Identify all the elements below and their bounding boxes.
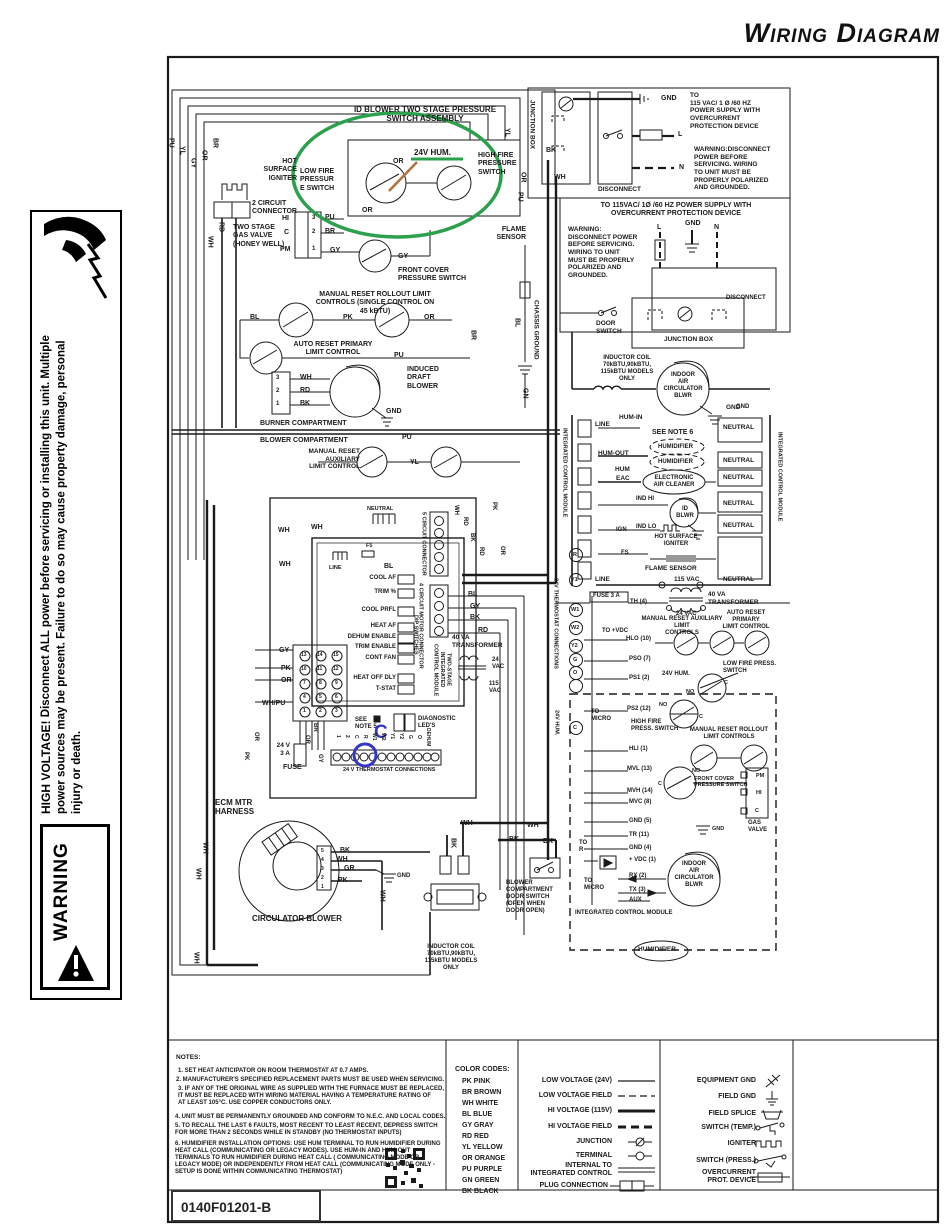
wire-rd-5c: RD [461,517,468,526]
wire-wh-t2: WH [527,822,539,830]
c-lf: C [724,680,728,686]
gv2-c: C [755,808,759,814]
gv-hi: HI [282,215,289,223]
wire-gy-fc2: GY [398,253,408,261]
tstat-conn-v-label: 24V THERMOSTAT CONNECTIONS [552,578,558,669]
idb-pin2: 2 [276,388,279,395]
ll-lvf: LOW VOLTAGE FIELD [500,1092,612,1100]
ind-hi-label: IND HI [636,496,654,503]
wire-wh-l3: WH [191,952,199,964]
hsi-label-2: HOT SURFACE IGNITER [650,534,702,548]
wire-bk-4c: BK [470,614,480,622]
rx-label: RX (2) [629,873,646,880]
cb-p1: 1 [321,885,324,891]
st-6: Y1 [388,733,394,739]
sl-switch-press: SWITCH (PRESS.) [648,1157,756,1165]
note-3: 3. IF ANY OF THE ORIGINAL WIRE AS SUPPLI… [178,1086,444,1107]
bus-br: BR [210,138,218,148]
wire-pk-5c: PK [490,502,497,510]
gv-c: C [284,229,289,237]
p5: 5 [319,695,322,701]
wire-wh-hsi: WH [205,236,213,248]
two-stage-module-label: TWO-STAGE INTEGRATED CONTROL MODULE [432,640,451,700]
p6: 6 [335,695,338,701]
gas-valve-label: TWO STAGE GAS VALVE (HONEY WELL) [233,224,284,249]
cc-rd: RD RED [462,1133,489,1141]
t-y2: Y2 [571,643,578,649]
part-number-box: 0140F01201-B [171,1190,321,1222]
low-fire-label: LOW FIRE PRESSUR E SWITCH [300,168,346,193]
wire-wh-l2: WH [193,868,201,880]
warning-label: WARNING [51,831,73,941]
cb-p5: 5 [321,849,324,855]
mvl-label: MVL (13) [627,766,652,773]
front-cover-label: FRONT COVER PRESSURE SWITCH [398,267,490,284]
vac115-center: 115 VAC [489,681,501,695]
cc-wh: WH WHITE [462,1100,498,1108]
to-r-label: TO R [579,840,587,854]
wire-wh-c2: WH [311,524,323,532]
power2-l: L [657,224,661,232]
wire-bk-t2: BK [543,838,553,846]
st-10: DEHUM [424,728,430,746]
notes-heading: NOTES: [176,1054,201,1062]
inductor-coil-label-1: INDUCTOR COIL 70kBTU,90kBTU, 115kBTU MOD… [598,355,656,383]
wire-or-5c: OR [498,546,505,555]
ll-junction: JUNCTION [500,1138,612,1146]
neutral-1: NEUTRAL [723,424,754,432]
st-9: O [415,735,421,739]
no-hf: NO [659,702,667,708]
gnd5-label: GND (5) [629,818,651,825]
dip-cool-prfl: COOL PRFL [340,607,396,614]
gv-pm: PM [280,246,291,254]
wire-wh-l1: WH [200,842,208,854]
dip-cont-fan: CONT FAN [340,655,396,662]
part-number: 0140F01201-B [181,1200,271,1215]
t-y1: Y1 [571,577,578,583]
humidifier-bottom: HUMIDIFIER [638,946,676,954]
icm-line-bottom: LINE [595,576,610,584]
wiring-diagram-page: Wiring Diagram ID BLOWER TWO STAGE PRESS… [0,0,947,1229]
p8: 8 [319,681,322,687]
id-blwr-label: ID BLWR [676,506,694,520]
t-w2: W2 [571,625,579,631]
flame-sensor-label-2: FLAME SENSOR [645,565,697,573]
p7: 7 [303,681,306,687]
wire-pk-f: PK [242,752,249,760]
neutral-center: NEUTRAL [367,506,393,512]
junction-box-label-1: JUNCTION BOX [528,100,536,149]
p15: 15 [333,653,339,659]
st-5: W2 [379,733,385,741]
humidifier-oval-2: HUMIDIFIER [658,459,693,466]
to-vdc-label: TO +VDC [602,628,628,635]
wire-br-f: BR [311,723,318,732]
cc-br: BR BROWN [462,1089,501,1097]
wire-bl-4c: BL [468,591,477,599]
cb-gnd-label: GND [397,873,410,880]
aux-limit-label: MANUAL RESET AUXILIARY LIMIT CONTROL [296,448,360,471]
tx-label: TX (3) [629,887,646,894]
hum24-v-label: 24V HUM. [553,710,559,735]
indoor-blower-label-1: INDOOR AIR CIRCULATOR BLWR [660,372,706,400]
icm-line-top: LINE [595,421,610,429]
st-3: R [361,735,367,739]
bus-yl: YL [177,146,185,155]
note-5: 5. TO RECALL THE LAST 6 FAULTS, MOST REC… [175,1123,438,1137]
gv-pin1: 1 [312,246,315,253]
high-fire-lv-label: HIGH FIRE PRESS. SWITCH [631,719,678,733]
p14: 14 [317,653,323,659]
cc-gy: GY GRAY [462,1122,494,1130]
color-codes-heading: COLOR CODES: [455,1066,509,1074]
t-c: C [573,725,577,731]
vac24-center: 24 VAC [492,657,504,671]
wire-or-ro: OR [424,314,435,322]
p13: 13 [301,653,307,659]
wire-wh-cb2: WH [377,890,385,902]
rollout-title: MANUAL RESET ROLLOUT LIMIT CONTROLS (SIN… [285,291,465,316]
cc-pk: PK PINK [462,1078,490,1086]
wire-pk-cb: PK [338,877,348,885]
sl-field-gnd: FIELD GND [648,1093,756,1101]
mvc-label: MVC (8) [629,799,651,806]
humidifier-oval-1: HUMIDIFIER [658,444,693,451]
wire-rd-idb: RD [300,387,310,395]
wire-wh-jb: WH [554,174,566,182]
2-circuit-connector-label: 2 CIRCUIT CONNECTOR [252,200,297,217]
wire-wh-c3: WH [279,561,291,569]
c-fc: C [658,781,662,787]
idb-pin1: 1 [276,401,279,408]
idb-pin3: 3 [276,375,279,382]
wire-wh-c1: WH [278,527,290,535]
page-title: Wiring Diagram [700,18,940,49]
p11: 11 [317,667,322,673]
bus-pu: PU [166,138,174,148]
wire-bl-center: BL [384,563,393,571]
mvh-label: MVH (14) [627,788,653,795]
icm-left-label: INTEGRATED CONTROL MODULE [561,428,567,517]
auto-reset-label: AUTO RESET PRIMARY LIMIT CONTROL [278,341,388,358]
burner-compartment-label: BURNER COMPARTMENT [260,420,347,428]
wire-or-15p: OR [281,677,292,685]
vdc1-label: + VDC (1) [629,857,656,864]
hum24-lv-label: 24V HUM. [662,671,690,678]
fs-label: FS [621,550,629,557]
ll-lv24: LOW VOLTAGE (24V) [500,1077,612,1085]
p12: 12 [333,667,339,673]
wire-bk-idb: BK [300,400,310,408]
wire-bk-ind: BK [448,838,456,848]
ll-hv: HI VOLTAGE (115V) [500,1107,612,1115]
dip-trim: TRIM % [340,589,396,596]
t-w1: W1 [571,607,579,613]
ign-label: IGN [616,527,627,534]
gnd-sym-label: GND [712,826,724,832]
gas-valve-lv-label: GAS VALVE [748,820,767,834]
neutral-5: NEUTRAL [723,522,754,530]
wire-gy-4c: GY [470,603,480,611]
bus-or: OR [199,150,207,161]
ll-terminal: TERMINAL [500,1152,612,1160]
st-7: Y2 [397,733,403,739]
indoor-blower-label-2: INDOOR AIR CIRCULATOR BLWR [672,861,716,889]
wire-or-f: OR [252,732,259,741]
pso-label: PSO (7) [629,656,651,663]
aux-label: AUX [629,897,642,904]
fuse3a-label: FUSE 3 A [593,593,620,600]
wire-whpu-15p: WH/PU [262,700,285,708]
t-r: R [573,552,577,558]
wire-bk-5c: BK [468,533,475,542]
to-micro-1: TO MICRO [591,709,611,723]
wire-pk-ro: PK [343,314,353,322]
wire-bk-t1: BK [509,836,519,844]
induced-blower-label: INDUCED DRAFT BLOWER [407,366,439,391]
gv2-hi: HI [756,790,762,796]
st-1: 2 [343,735,349,738]
st-8: G [406,735,412,739]
power2-disconnect: DISCONNECT [726,295,766,302]
wire-pk-15p: PK [281,665,291,673]
note-4: 4. UNIT MUST BE PERMANENTLY GROUNDED AND… [175,1114,445,1121]
wire-or-hf: OR [518,172,526,183]
sl-field-splice: FIELD SPLICE [648,1110,756,1118]
tfmr40-center-label: 40 VA TRANSFORMER [452,634,503,649]
power2-warning-text: WARNING: DISCONNECT POWER BEFORE SERVICI… [568,226,660,280]
t-g: G [573,657,577,663]
p3: 3 [335,709,338,715]
p1: 1 [303,709,306,715]
see-note6-label: SEE NOTE 6 [652,429,693,437]
hum-in-label: HUM-IN [619,414,642,422]
p10: 10 [301,667,307,673]
dip-cool-af: COOL AF [340,575,396,582]
door-switch-label: DOOR SWITCH [596,320,622,335]
psa-title: ID BLOWER TWO STAGE PRESSURE SWITCH ASSE… [320,105,530,124]
note-6: 6. HUMIDIFIER INSTALLATION OPTIONS: USE … [175,1141,441,1176]
ll-plug: PLUG CONNECTION [496,1182,608,1190]
warning-label-box: WARNING [40,824,110,990]
neutral-4: NEUTRAL [723,500,754,508]
gv-pin2: 2 [312,229,315,236]
vac115-label: 115 VAC [674,576,700,584]
sl-igniter: IGNITER [648,1140,756,1148]
gv2-pm: PM [756,773,764,779]
label-layer: Wiring Diagram ID BLOWER TWO STAGE PRESS… [0,0,947,1229]
arp-title-lv: AUTO RESET PRIMARY LIMIT CONTROL [714,610,778,631]
p2: 2 [319,709,322,715]
wire-or-f2: OR [303,735,310,744]
wire-gr-cb: GR [344,865,355,873]
line-center: LINE [329,565,342,571]
c-hf: C [699,714,703,720]
neutral-3: NEUTRAL [723,474,754,482]
wire-bk-cb: BK [340,847,350,855]
note-2: 2. MANUFACTURER'S SPECIFIED REPLACEMENT … [176,1077,444,1084]
ps2-label2: PS2 (12) [627,706,651,713]
wire-pu-gv: PU [325,214,335,222]
note-1: 1. SET HEAT ANTICIPATOR ON ROOM THERMOST… [178,1068,368,1075]
wire-wh-idb: WH [300,374,312,382]
st-0: 1 [334,735,340,738]
no-lf: NO [686,689,694,695]
ll-hvf: HI VOLTAGE FIELD [500,1123,612,1131]
ll-internal: INTERNAL TO INTEGRATED CONTROL [492,1162,612,1179]
cc-bl: BL BLUE [462,1111,492,1119]
icm-right-label: INTEGRATED CONTROL MODULE [776,432,782,521]
cb-p4: 4 [321,858,324,864]
blower-compartment-label: BLOWER COMPARTMENT [260,437,348,445]
conn4-label: 4 CIRCUIT MOTOR CONNECTOR [417,583,423,669]
wire-gn-cg: GN [520,388,528,399]
cb-p3: 3 [321,867,324,873]
hum-out-label: HUM-OUT [598,450,629,458]
wire-br-right: BR [468,330,476,340]
tfmr40-label: 40 VA TRANSFORMER [708,591,759,606]
st-4: W1 [370,733,376,741]
icm-gnd-top: GND [736,404,749,411]
dip-tstat: T-STAT [340,686,396,693]
wire-br-gv: BR [325,228,335,236]
junction-box-label-2: JUNCTION BOX [664,336,713,344]
wire-gy-fc: GY [330,247,340,255]
hum-label: HUM [615,466,630,474]
neutral-6: NEUTRAL [723,576,754,584]
cc-yl: YL YELLOW [462,1144,503,1152]
fuse24-word: FUSE [283,764,302,772]
wire-wh-5c: WH [452,505,459,515]
wire-gy-15p: GY [279,647,289,655]
sl-switch-temp: SWITCH (TEMP.) [648,1124,756,1132]
warning-triangle-icon [57,943,95,983]
p9: 9 [335,681,338,687]
bus-gy: GY [188,158,196,168]
wire-yl-hf: YL [502,128,510,137]
tstat-strip-label: 24 V THERMOSTAT CONNECTIONS [343,767,435,773]
dip-heat-off: HEAT OFF DLY [336,675,396,682]
t-o: O [573,670,577,676]
wire-wh-cb: WH [336,856,348,864]
power2-gnd: GND [685,220,701,228]
wire-pu-aux: PU [402,434,412,442]
power1-gnd: GND [661,95,677,103]
sl-overcurrent: OVERCURRENT PROT. DEVICE [648,1169,756,1186]
hli-label: HLI (1) [629,746,648,753]
power1-warning-text: WARNING:DISCONNECT POWER BEFORE SERVICIN… [694,146,794,192]
rollout-lv-label: MANUAL RESET ROLLOUT LIMIT CONTROLS [688,727,770,741]
p4: 4 [303,695,306,701]
fuse24-label: 24 V 3 A [258,742,290,757]
st-2: C [352,735,358,739]
power1-supply-text: TO 115 VAC/ 1 Ø /60 HZ POWER SUPPLY WITH… [690,92,790,130]
warning-heading: HIGH VOLTAGE! [39,720,53,814]
dip-heat-af: HEAT AF [340,623,396,630]
icm-bottom-label: INTEGRATED CONTROL MODULE [575,910,672,917]
hlo-label: HLO (10) [626,636,651,643]
power2-supply-text: TO 115VAC/ 1Ø /60 HZ POWER SUPPLY WITH O… [565,202,787,219]
hum24-label: 24V HUM. [414,148,451,157]
gv-pin3: 3 [312,215,315,222]
sl-equip-gnd: EQUIPMENT GND [648,1077,756,1085]
power2-n: N [714,224,719,232]
neutral-2: NEUTRAL [723,457,754,465]
wire-pu-arl: PU [394,352,404,360]
power1-disconnect: DISCONNECT [598,186,641,194]
front-cover-lv-label: FRONT COVER PRESSURE SWITCH [694,776,754,789]
high-voltage-hand-icon [36,214,116,310]
eac-label: EAC [616,475,630,483]
wire-rd-hsi: RD [216,222,224,232]
to-micro-2: TO MICRO [584,878,604,892]
circulator-blower-label: CIRCULATOR BLOWER [252,914,342,923]
tr11-label: TR (11) [629,832,649,839]
conn5-label: 5 CIRCUIT CONNECTOR [420,512,426,576]
inductor-coil-label-2: INDUCTOR COIL 70kBTU,90kBTU, 115kBTU MOD… [420,944,482,972]
wire-gy-f: GY [316,754,323,763]
low-fire-lv-label: LOW FIRE PRESS. SWITCH [723,661,776,675]
hot-surface-igniter-label: HOT SURFACE IGNITER [255,158,297,183]
wire-yl-aux: YL [410,459,419,467]
wire-bl-cg: BL [512,318,520,327]
ind-lo-label: IND LO [636,524,656,531]
wire-or-psa2: OR [362,207,373,215]
wire-pu-hf: PU [515,192,523,202]
flame-sensor-label: FLAME SENSOR [488,226,526,243]
wire-bl-ro: BL [250,314,259,322]
wire-bk-jb: BK [546,147,556,155]
warning-banner-text: HIGH VOLTAGE! Disconnect ALL power befor… [38,314,114,814]
cc-bk: BK BLACK [462,1188,499,1196]
idb-gnd-label: GND [386,408,402,416]
chassis-ground-label: CHASSIS GROUND [532,300,540,360]
dip-trim-en: TRIM ENABLE [336,644,396,651]
gnd4-label: GND (4) [629,845,651,852]
wire-rd-5c2: RD [477,547,484,556]
no-fc: NO [692,768,700,774]
power1-l: L [678,131,682,139]
ecm-harness-label: ECM MTR HARNESS [215,798,254,817]
eac-name: ELECTRONIC AIR CLEANER [648,475,700,489]
power1-n: N [679,164,684,172]
th4-label: TH (4) [630,599,647,606]
f5-label: F5 [366,543,372,549]
warning-banner: HIGH VOLTAGE! Disconnect ALL power befor… [30,210,122,1000]
dip-dehum: DEHUM ENABLE [336,634,396,641]
cb-p2: 2 [321,876,324,882]
ps1-label: PS1 (2) [629,675,649,682]
wire-or-psa1: OR [393,158,404,166]
door-switch-2-label: BLOWER COMPARTMENT DOOR SWITCH (OPEN WHE… [506,880,553,915]
wire-wh-t1: WH [461,820,473,828]
